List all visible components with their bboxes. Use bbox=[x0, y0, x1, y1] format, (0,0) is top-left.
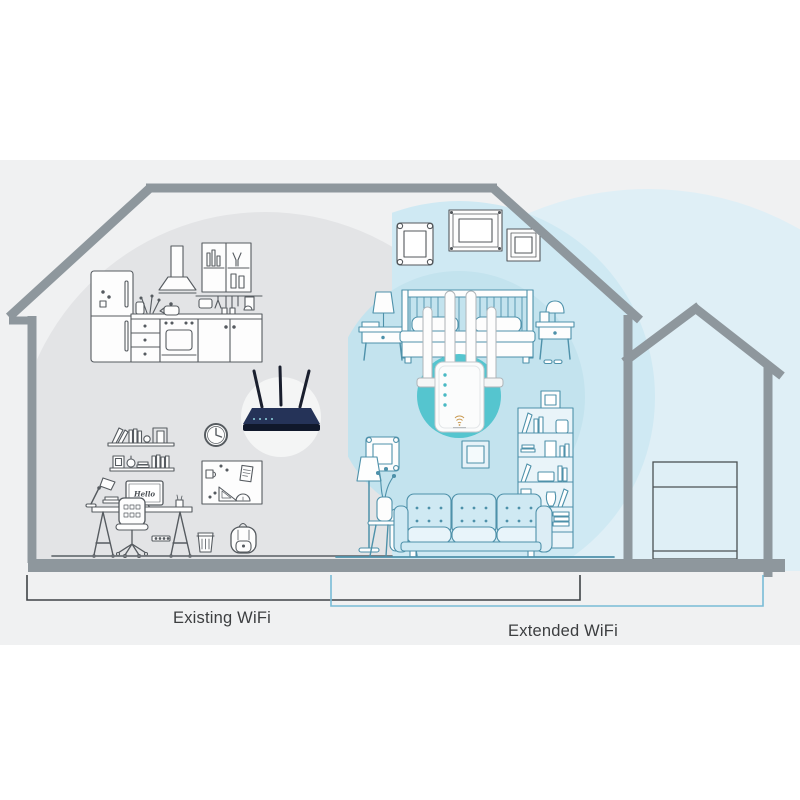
extended-wifi-label: Extended WiFi bbox=[508, 622, 618, 640]
sofa-frame-small bbox=[462, 441, 489, 468]
stove-oven bbox=[160, 319, 198, 362]
wall-cabinet bbox=[202, 243, 251, 292]
ornate-frame bbox=[397, 223, 433, 265]
existing-wifi-label: Existing WiFi bbox=[173, 609, 271, 627]
floor-bar bbox=[28, 559, 785, 572]
extender-body bbox=[435, 362, 484, 432]
illustration-canvas: Hello bbox=[0, 0, 800, 800]
monitor-screen-text: Hello bbox=[133, 490, 155, 499]
pin-board bbox=[202, 461, 262, 504]
small-frame bbox=[507, 229, 540, 261]
wall-clock bbox=[205, 424, 227, 446]
house-coverage-diagram: Hello bbox=[0, 0, 800, 800]
sofa bbox=[394, 494, 552, 557]
trash-bin bbox=[197, 533, 214, 552]
router-body bbox=[243, 408, 320, 424]
router-base bbox=[243, 424, 320, 431]
large-frame bbox=[449, 210, 502, 251]
wall-shelf-top bbox=[108, 428, 174, 446]
fridge bbox=[91, 271, 133, 362]
backpack bbox=[231, 524, 256, 554]
